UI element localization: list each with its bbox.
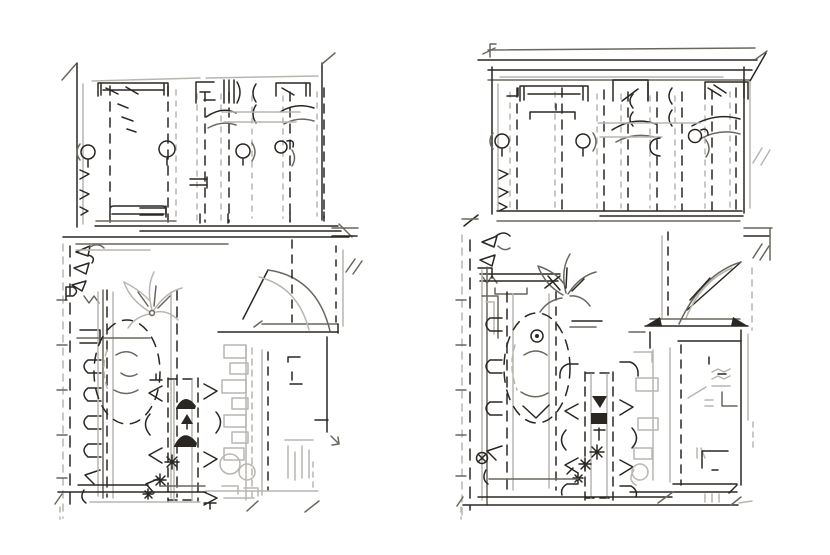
floor-plan-sheet: Two rough pen-sketched apartment floor p… (0, 0, 830, 555)
rug-medallion-dot (535, 334, 539, 338)
sketch-canvas: Two rough pen-sketched apartment floor p… (0, 0, 830, 555)
